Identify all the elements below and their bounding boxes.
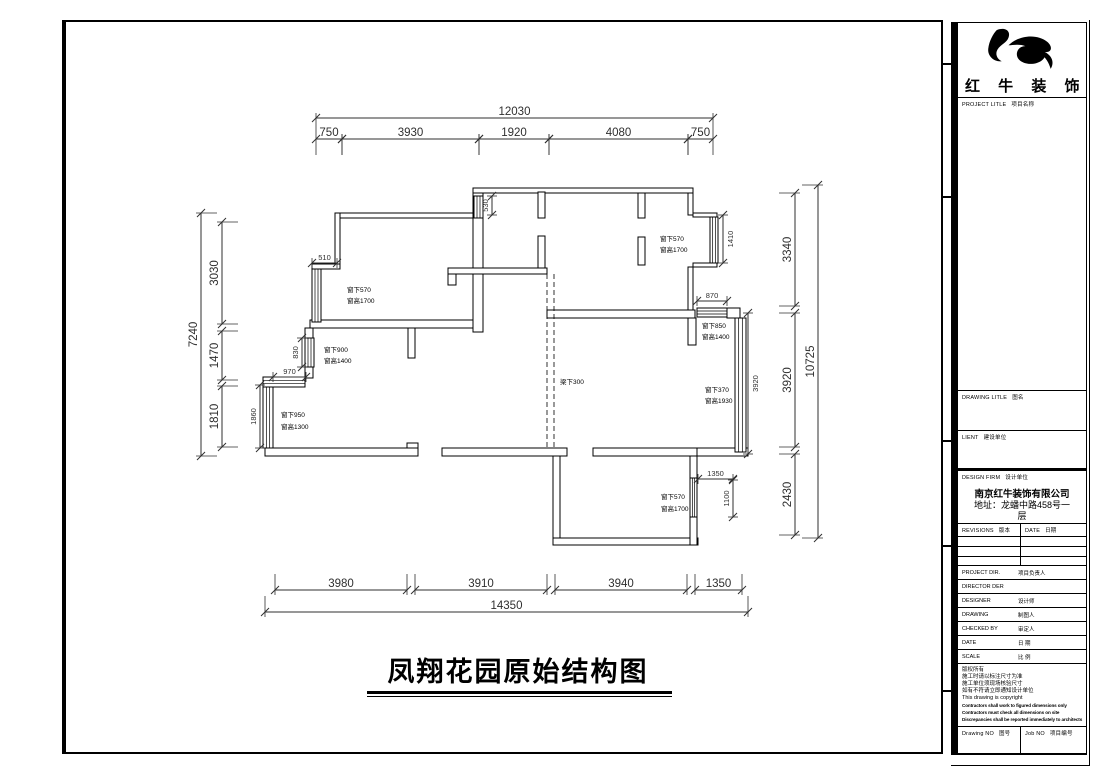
field-checked-by: CHECKED BY审定人 [958, 622, 1086, 636]
svg-text:3980: 3980 [328, 578, 354, 590]
brand-name: 红 牛 装 饰 [958, 79, 1086, 95]
svg-text:窗高1400: 窗高1400 [702, 332, 730, 341]
title-block: 红 牛 装 饰 PROJECT LITLE项目名称 DRAWING LITLE图… [958, 22, 1087, 755]
svg-text:窗下570: 窗下570 [660, 234, 684, 243]
svg-text:窗下850: 窗下850 [702, 321, 726, 330]
svg-text:3940: 3940 [608, 578, 634, 590]
svg-text:窗高1700: 窗高1700 [347, 296, 375, 305]
revision-row [958, 546, 1086, 547]
notes-section: 版权所有 施工时请以标注尺寸为准 施工单位须现场核验尺寸 如有不符请立即通知设计… [958, 664, 1086, 727]
svg-text:830: 830 [291, 346, 300, 359]
cad-sheet: 1203075039301920408075039803910394013501… [0, 0, 1108, 780]
fold-mark [943, 690, 951, 692]
job-no-label: Job NO项目编号 [1021, 727, 1086, 737]
company-name: 南京红牛装饰有限公司 [958, 486, 1086, 500]
svg-text:窗下950: 窗下950 [281, 410, 305, 419]
svg-text:窗高1700: 窗高1700 [661, 504, 689, 513]
field-designer: DESIGNER设计师 [958, 594, 1086, 608]
client-section: LIENT建设单位 [958, 431, 1086, 469]
svg-text:750: 750 [691, 127, 710, 139]
svg-text:12030: 12030 [499, 106, 531, 118]
plan-annotations: 窗下570窗高1700窗下900窗高1400窗下950窗高1300窗下570窗高… [281, 234, 733, 513]
svg-text:1350: 1350 [707, 469, 724, 478]
svg-text:窗高1400: 窗高1400 [324, 356, 352, 365]
svg-text:2430: 2430 [782, 482, 794, 508]
svg-text:窗下570: 窗下570 [661, 492, 685, 501]
dimension-layer: 1203075039301920408075039803910394013501… [188, 106, 823, 617]
svg-text:7240: 7240 [188, 322, 200, 348]
design-firm-label: DESIGN FIRM [962, 475, 1000, 481]
field-scale: SCALE比 例 [958, 650, 1086, 664]
note-line-bold: Contractors shall work to figured dimens… [962, 702, 1082, 709]
revisions-section: REVISIONS版本 DATE日期 [958, 524, 1086, 566]
svg-text:窗下900: 窗下900 [324, 345, 348, 354]
svg-text:窗高1700: 窗高1700 [660, 245, 688, 254]
svg-text:14350: 14350 [491, 600, 523, 612]
svg-text:3030: 3030 [209, 260, 221, 286]
svg-text:870: 870 [706, 291, 719, 300]
drawing-title-label: DRAWING LITLE [962, 395, 1007, 401]
svg-text:窗高1930: 窗高1930 [705, 396, 733, 405]
svg-text:窗下370: 窗下370 [705, 385, 729, 394]
titleblock-bar [951, 22, 958, 755]
note-line: 版权所有 [962, 667, 1082, 674]
fold-mark [943, 440, 951, 442]
beam-dashed-lines [547, 274, 554, 448]
svg-text:窗下570: 窗下570 [347, 285, 371, 294]
field-drawing: DRAWING制图人 [958, 608, 1086, 622]
svg-text:3910: 3910 [468, 578, 494, 590]
svg-text:1920: 1920 [501, 127, 527, 139]
fold-mark [943, 63, 951, 65]
note-line: 施工单位须现场核验尺寸 [962, 681, 1082, 688]
field-project-dir: PROJECT DIR.项目负责人 [958, 566, 1086, 580]
drawing-title-text: 凤翔花园原始结构图 [368, 650, 668, 689]
svg-text:750: 750 [319, 127, 338, 139]
logo-section: 红 牛 装 饰 [958, 23, 1086, 98]
svg-text:10725: 10725 [805, 346, 817, 378]
fold-mark [943, 545, 951, 547]
svg-text:窗高1300: 窗高1300 [281, 422, 309, 431]
svg-text:530: 530 [481, 199, 490, 212]
svg-text:梁下300: 梁下300 [560, 377, 584, 386]
svg-text:970: 970 [283, 367, 296, 376]
bull-logo-icon [970, 25, 1074, 79]
svg-text:1100: 1100 [722, 490, 731, 506]
svg-text:4080: 4080 [606, 127, 632, 139]
note-line: 施工时请以标注尺寸为准 [962, 674, 1082, 681]
svg-text:510: 510 [318, 253, 331, 262]
project-title-section: PROJECT LITLE项目名称 [958, 98, 1086, 391]
svg-text:3340: 3340 [782, 237, 794, 263]
note-line-bold: Discrepancies shall be reported immediat… [962, 716, 1082, 723]
numbers-section: Drawing NO图号 Job NO项目编号 [958, 727, 1086, 754]
drawing-title-section: DRAWING LITLE图名 [958, 391, 1086, 431]
revision-row [958, 556, 1086, 557]
client-label: LIENT [962, 435, 979, 441]
revision-row [958, 536, 1086, 537]
note-line: This drawing is copyright [962, 695, 1082, 702]
svg-text:1810: 1810 [209, 404, 221, 430]
date-col-label: DATE日期 [1021, 524, 1056, 534]
svg-text:3930: 3930 [398, 127, 424, 139]
title-underline-thin [367, 696, 672, 697]
drawing-no-label: Drawing NO图号 [958, 727, 1024, 737]
design-firm-section: DESIGN FIRM设计单位 南京红牛装饰有限公司 地址：龙蟠中路458号一 … [958, 469, 1086, 524]
fold-mark [943, 196, 951, 198]
revisions-label: REVISIONS版本 [958, 524, 1010, 534]
field-date: DATE日 期 [958, 636, 1086, 650]
note-line: 如有不符请立即通知设计单位 [962, 688, 1082, 695]
svg-text:1470: 1470 [209, 343, 221, 369]
svg-text:1350: 1350 [706, 578, 732, 590]
note-line-bold: Contractors must check all dimensions on… [962, 709, 1082, 716]
svg-text:1410: 1410 [726, 231, 735, 248]
company-address: 地址：龙蟠中路458号一 层 [958, 500, 1086, 522]
svg-text:3920: 3920 [751, 375, 760, 392]
signature-rows-section: PROJECT DIR.项目负责人 DIRECTOR DER DESIGNER设… [958, 566, 1086, 664]
field-director: DIRECTOR DER [958, 580, 1086, 594]
title-underline-thick [367, 691, 672, 694]
project-title-label: PROJECT LITLE [962, 102, 1006, 108]
svg-text:3920: 3920 [782, 367, 794, 393]
svg-text:1860: 1860 [249, 408, 258, 425]
